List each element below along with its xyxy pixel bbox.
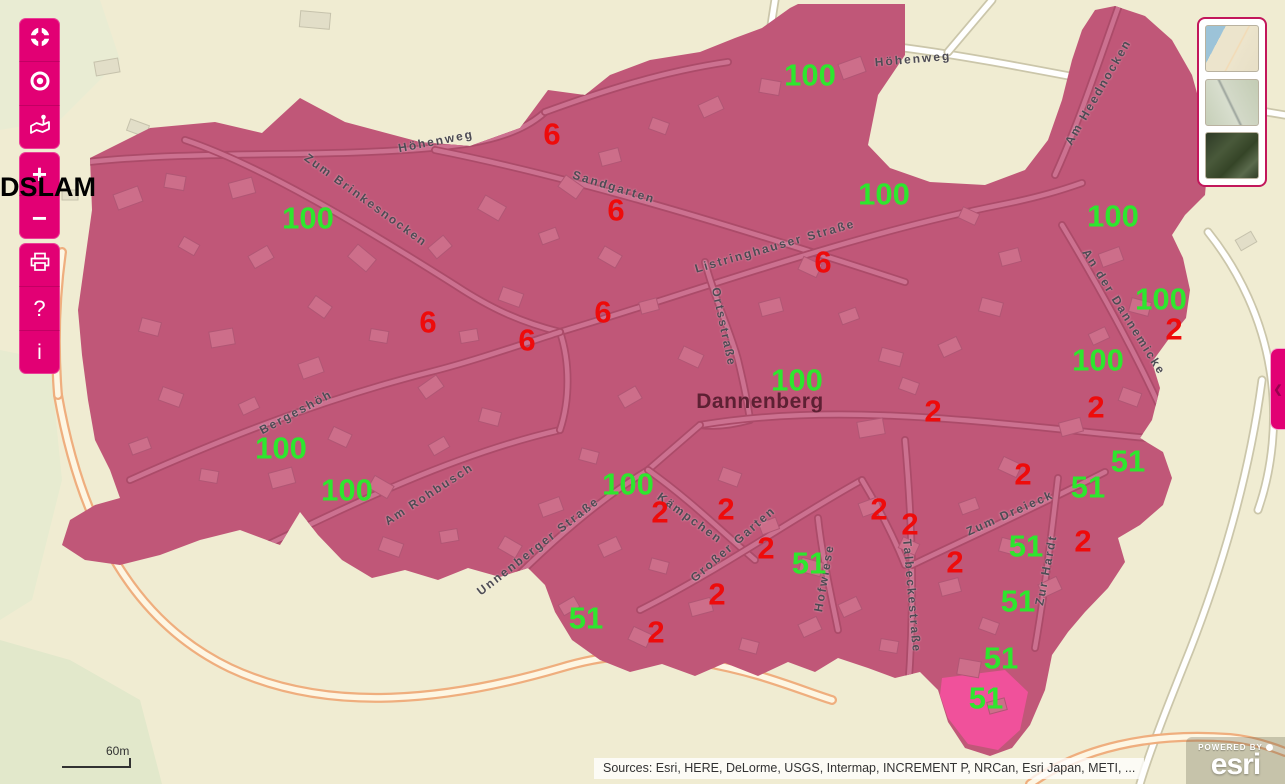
map-application: HöhenwegHöhenwegSandgartenZum Brinkesnoc…: [0, 0, 1285, 784]
zoom-in-button[interactable]: +: [19, 152, 60, 195]
chevron-left-icon: ❮: [1273, 383, 1282, 396]
esri-wordmark: esri: [1211, 752, 1260, 778]
imagery-thumbnail[interactable]: [1205, 132, 1259, 179]
zoom-out-button[interactable]: −: [19, 195, 60, 239]
panel-expand-tab[interactable]: ❮: [1270, 348, 1285, 430]
streets-thumbnail[interactable]: [1205, 25, 1259, 72]
basemap-pin-icon: [28, 113, 52, 142]
toolbar-misc: ? i: [19, 243, 60, 374]
map-canvas[interactable]: [0, 0, 1285, 784]
help-icon: ?: [33, 298, 45, 320]
toolbar-zoom: + −: [19, 152, 60, 239]
default-extent-button[interactable]: [19, 18, 60, 61]
extent-icon: [28, 25, 52, 54]
topographic-thumbnail[interactable]: [1205, 79, 1259, 126]
esri-logo: POWERED BY esri: [1186, 737, 1285, 784]
toolbar-navigation: [19, 18, 60, 149]
info-button[interactable]: i: [19, 330, 60, 374]
overview-map-button[interactable]: [19, 105, 60, 149]
help-button[interactable]: ?: [19, 286, 60, 330]
print-button[interactable]: [19, 243, 60, 286]
scale-bar-line: [62, 758, 131, 768]
attribution-bar: Sources: Esri, HERE, DeLorme, USGS, Inte…: [594, 758, 1144, 779]
scale-bar: 60m: [62, 744, 131, 768]
locate-me-button[interactable]: [19, 61, 60, 105]
info-icon: i: [37, 342, 42, 363]
plus-icon: +: [32, 161, 47, 187]
minus-icon: −: [32, 205, 47, 231]
basemap-gallery: [1197, 17, 1267, 187]
locate-icon: [28, 69, 52, 98]
globe-dot-icon: [1266, 744, 1273, 751]
printer-icon: [28, 250, 52, 279]
place-label-dannenberg: Dannenberg: [696, 390, 824, 414]
scale-bar-label: 60m: [106, 744, 131, 758]
